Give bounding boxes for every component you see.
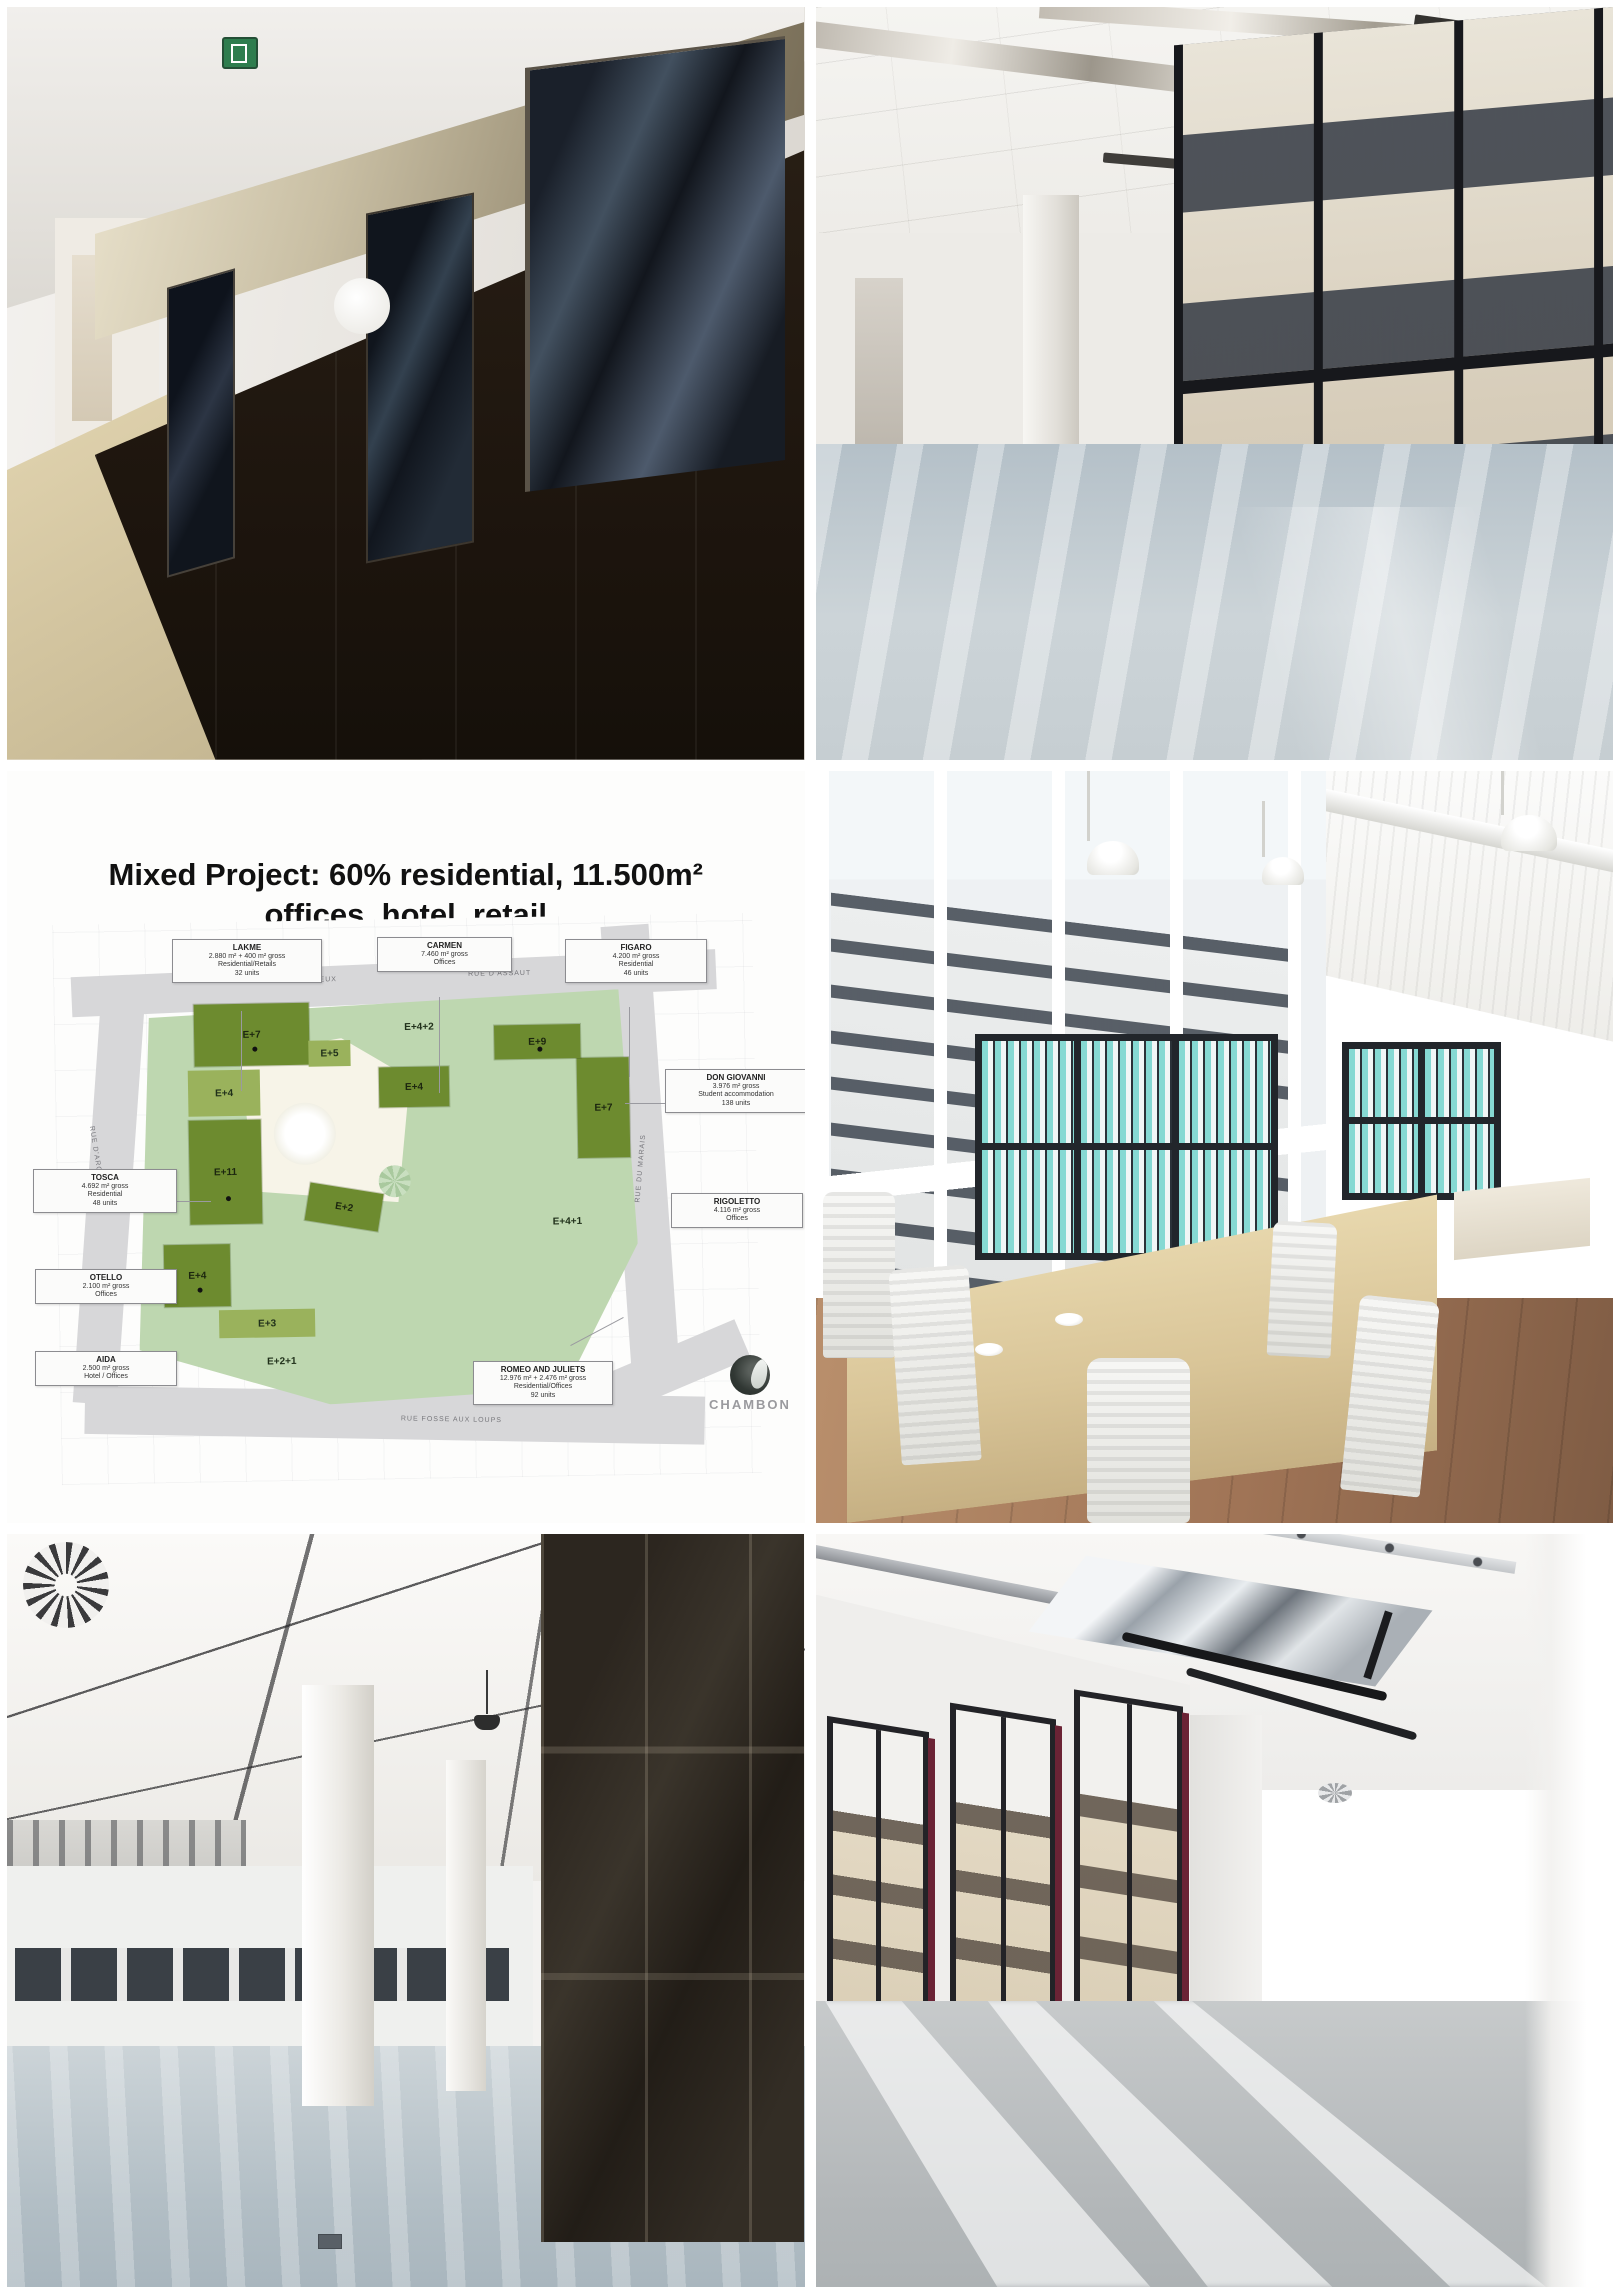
building-line: Residential/Offices (478, 1383, 608, 1392)
block-label: E+9 (528, 1036, 546, 1047)
plan-block: E+4+2 (384, 1016, 454, 1037)
collage-grid: Mixed Project: 60% residential, 11.500m²… (0, 0, 1620, 2294)
office-chair (889, 1265, 982, 1466)
bowl (975, 1343, 1003, 1356)
office-chair (823, 1192, 895, 1358)
leader-line (625, 1103, 669, 1104)
building-line: Residential (38, 1191, 172, 1200)
building-name: TOSCA (38, 1173, 172, 1183)
photo-open-office (816, 7, 1614, 760)
photo-collage-page: Mixed Project: 60% residential, 11.500m²… (0, 0, 1620, 2294)
plan-block: E+3 (219, 1308, 315, 1338)
glass-panel-large (525, 36, 785, 492)
building-line: Offices (40, 1291, 172, 1300)
building-name: DON GIOVANNI (670, 1073, 802, 1083)
office-floor (816, 2001, 1614, 2287)
building-line: 7.460 m² gross (382, 951, 507, 960)
building-line: 92 units (478, 1392, 608, 1401)
binder-row (1425, 1049, 1494, 1118)
building-label-rigoletto: RIGOLETTO 4.116 m² gross Offices (671, 1193, 803, 1229)
building-name: FIGARO (570, 943, 702, 953)
block-label: E+7 (594, 1102, 612, 1113)
building-line: 4.116 m² gross (676, 1207, 798, 1216)
building-label-romeo-and-juliets: ROMEO AND JULIETS 12.976 m² + 2.476 m² g… (473, 1361, 613, 1405)
glass-door-far (167, 268, 235, 577)
desk-far (1454, 1178, 1590, 1260)
building-line: Offices (676, 1215, 798, 1224)
porthole-circle (334, 278, 390, 334)
white-column-small (446, 1760, 486, 2091)
block-label: E+4+1 (553, 1215, 583, 1227)
photo-office-sunlight (816, 1534, 1614, 2287)
block-label: E+5 (320, 1047, 338, 1058)
block-dot (252, 1047, 257, 1052)
white-column-large (302, 1685, 374, 2106)
block-label: E+4 (215, 1087, 233, 1098)
plan-block: E+4+1 (527, 1210, 607, 1231)
floor-outlet-box (318, 2234, 342, 2249)
fountain (378, 1165, 411, 1198)
site-plan-sheet: Mixed Project: 60% residential, 11.500m²… (7, 771, 805, 1524)
building-line: 12.976 m² + 2.476 m² gross (478, 1375, 608, 1384)
photo-corridor (7, 7, 805, 760)
plan-block: E+7 (194, 1002, 310, 1066)
building-line: 48 units (38, 1200, 172, 1209)
plan-block: E+2+1 (242, 1350, 322, 1371)
photo-office-columns (7, 1534, 805, 2287)
pendant-cord (486, 1670, 488, 1714)
building-name: LAKME (177, 943, 317, 953)
building-label-figaro: FIGARO 4.200 m² gross Residential 46 uni… (565, 939, 707, 983)
building-line: 32 units (177, 970, 317, 979)
building-line: 2.100 m² gross (40, 1283, 172, 1292)
building-line: 3.976 m² gross (670, 1083, 802, 1092)
binder-row (1081, 1041, 1173, 1143)
building-label-tosca: TOSCA 4.692 m² gross Residential 48 unit… (33, 1169, 177, 1213)
binder-row (1349, 1124, 1418, 1193)
building-line: 2.880 m² + 400 m² gross (177, 953, 317, 962)
leader-line (241, 1011, 242, 1091)
photo-furnished-office (816, 771, 1614, 1524)
glass-door-mid (366, 192, 474, 563)
block-label: E+4 (405, 1081, 423, 1092)
binder-row (982, 1041, 1074, 1143)
plan-block: E+5 (308, 1040, 350, 1067)
building-name: OTELLO (40, 1273, 172, 1283)
building-name: ROMEO AND JULIETS (478, 1365, 608, 1375)
building-label-aida: AIDA 2.500 m² gross Hotel / Offices (35, 1351, 177, 1387)
building-line: Hotel / Offices (40, 1373, 172, 1382)
exit-door-glyph (231, 44, 247, 63)
lamp-rod (1501, 771, 1504, 815)
leaf-icon (749, 1358, 770, 1391)
office-chair (1267, 1221, 1338, 1360)
plan-block: E+7 (577, 1057, 631, 1158)
binder-shelf-large (975, 1034, 1278, 1260)
building-name: RIGOLETTO (676, 1197, 798, 1207)
building-line: Student accommodation (670, 1091, 802, 1100)
block-label: E+7 (242, 1029, 260, 1040)
building-label-carmen: CARMEN 7.460 m² gross Offices (377, 937, 512, 973)
block-label: E+3 (258, 1317, 276, 1328)
bronze-window-wall (541, 1534, 804, 2242)
exit-sign-icon (222, 37, 258, 69)
building-line: 4.200 m² gross (570, 953, 702, 962)
leader-line (629, 1007, 630, 1077)
far-window-strip (15, 1948, 509, 2001)
office-chair (1087, 1358, 1191, 1524)
building-name: AIDA (40, 1355, 172, 1365)
block-dot (537, 1046, 542, 1051)
building-label-lakme: LAKME 2.880 m² + 400 m² gross Residentia… (172, 939, 322, 983)
building-line: Residential/Retails (177, 961, 317, 970)
binder-row (1081, 1150, 1173, 1252)
binder-row (982, 1150, 1074, 1252)
chambon-logo: CHAMBON (695, 1355, 805, 1412)
building-line: 46 units (570, 970, 702, 979)
chambon-logo-icon (730, 1355, 770, 1395)
street-label: RUE FOSSE AUX LOUPS (401, 1415, 502, 1424)
building-line: 138 units (670, 1100, 802, 1109)
block-label: E+11 (214, 1166, 237, 1177)
binder-shelf-small (1342, 1042, 1502, 1200)
building-label-otello: OTELLO 2.100 m² gross Offices (35, 1269, 177, 1305)
round-diffuser (1318, 1783, 1352, 1803)
binder-row (1349, 1049, 1418, 1118)
bright-right-wall (1525, 1534, 1613, 2287)
plan-block: E+11 (189, 1119, 263, 1224)
building-line: 2.500 m² gross (40, 1365, 172, 1374)
block-dot (226, 1196, 231, 1201)
block-label: E+2 (334, 1200, 354, 1214)
floor-reflection (1135, 507, 1614, 760)
building-label-don-giovanni: DON GIOVANNI 3.976 m² gross Student acco… (665, 1069, 805, 1113)
binder-row (1179, 1041, 1271, 1143)
lamp-rod (1262, 801, 1265, 857)
block-dot (198, 1288, 203, 1293)
block-label: E+2+1 (267, 1355, 297, 1367)
building-name: CARMEN (382, 941, 507, 951)
block-label: E+4 (188, 1270, 206, 1281)
spiral-diffuser-icon (23, 1542, 109, 1628)
office-floor (816, 444, 1614, 760)
block-label: E+4+2 (404, 1021, 434, 1033)
lamp-rod (1087, 771, 1090, 841)
chambon-logo-text: CHAMBON (695, 1397, 805, 1412)
building-line: 4.692 m² gross (38, 1183, 172, 1192)
circular-plaza (273, 1102, 336, 1165)
plan-block: E+9 (494, 1024, 581, 1059)
leader-line (439, 997, 440, 1093)
building-line: Offices (382, 959, 507, 968)
plan-block: E+4 (188, 1069, 261, 1116)
binder-row (1425, 1124, 1494, 1193)
bowl (1055, 1313, 1083, 1326)
building-line: Residential (570, 961, 702, 970)
